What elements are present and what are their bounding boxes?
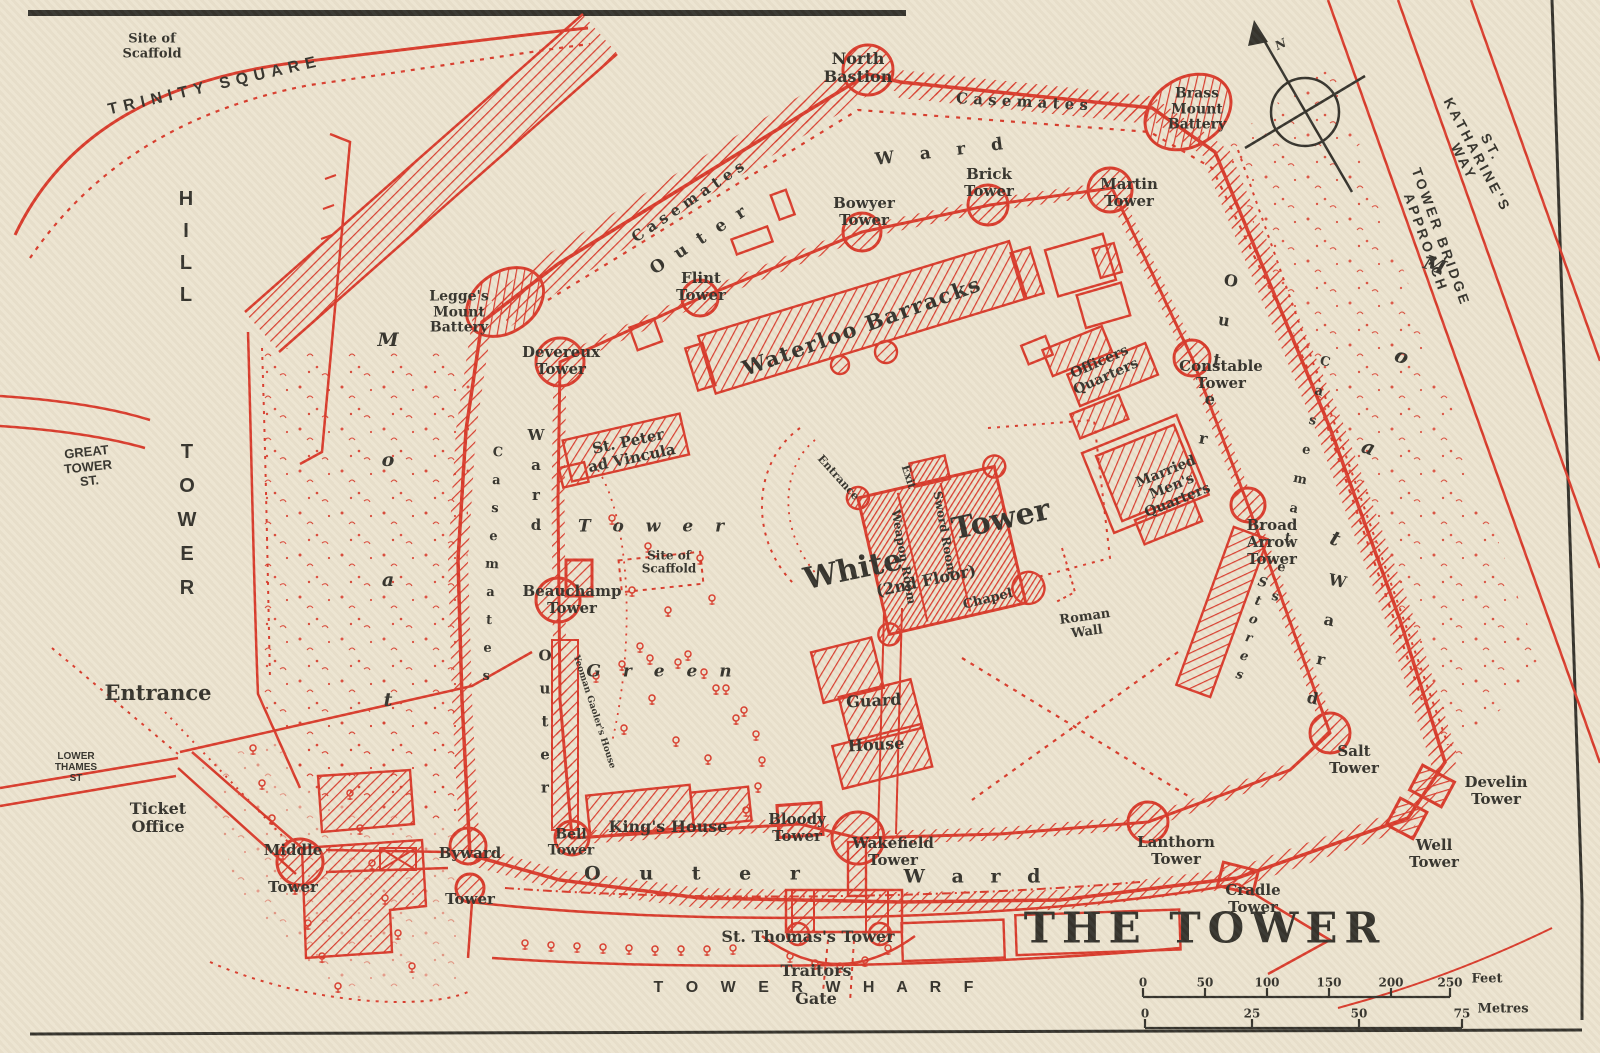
married-mens-quarters [1082, 415, 1217, 553]
tower-map-drawing [0, 0, 1600, 1053]
bell-tower [555, 821, 589, 855]
hospital-block [1045, 232, 1134, 333]
northwest-glacis [245, 14, 617, 352]
barracks-porch [875, 341, 897, 363]
martin-tower [1088, 168, 1132, 212]
compass-needle [1248, 20, 1268, 46]
bloody-tower [777, 803, 823, 838]
beauchamp-block [566, 560, 592, 596]
lanthorn-tower [1128, 802, 1168, 842]
wharf-buildings [901, 909, 1180, 961]
flint-tower [682, 280, 718, 316]
map: Site of ScaffoldTRINITY SQUARET O W E RH… [0, 0, 1600, 1053]
st-peter-ad-vincula [553, 414, 690, 488]
north-bastion [843, 45, 893, 95]
middle-tower [277, 839, 323, 885]
broad-arrow-tower [1231, 488, 1265, 522]
stores-building [1176, 527, 1267, 697]
bowyer-tower [843, 213, 881, 251]
byward-tower-south [456, 874, 484, 902]
constable-tower [1174, 340, 1210, 376]
salt-tower [1310, 713, 1350, 753]
barracks-porch [831, 356, 849, 374]
white-tower [842, 440, 1049, 647]
waterloo-barracks [683, 236, 1044, 398]
guard-house [809, 631, 932, 789]
wakefield-bridge [848, 842, 866, 896]
traitors-gate-arc [762, 936, 915, 964]
causeways-and-wharf [326, 608, 1552, 1008]
byward-tower [450, 828, 486, 864]
brick-tower [968, 185, 1008, 225]
scale-bars [1143, 988, 1462, 1028]
devereux-tower [536, 338, 584, 386]
